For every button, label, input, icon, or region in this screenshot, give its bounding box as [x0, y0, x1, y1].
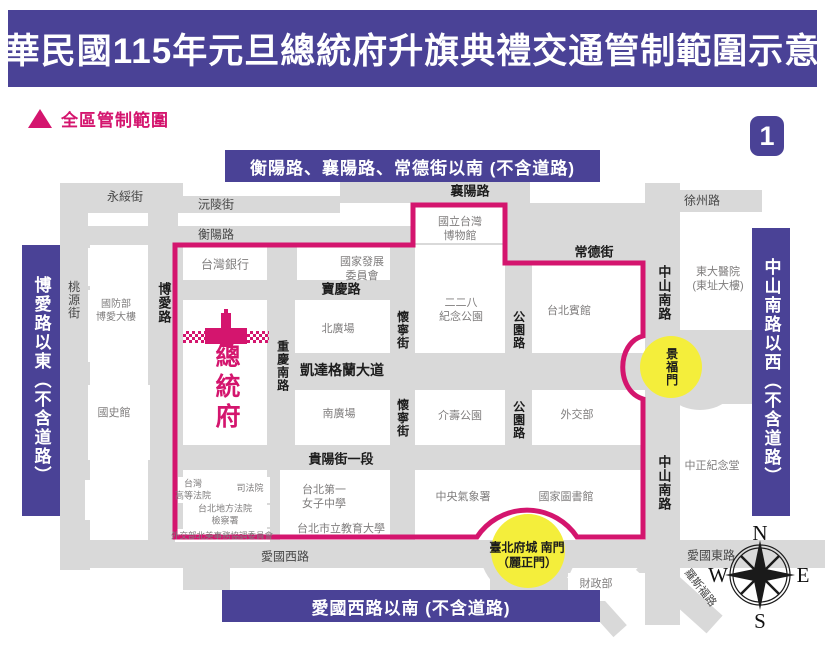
lbl-boai: 博愛路 [155, 282, 172, 324]
lbl-guesthouse: 台北賓館 [547, 304, 591, 318]
lbl-ndc: 國家發展 委員會 [340, 255, 384, 283]
lbl-ketagalan: 凱達格蘭大道 [300, 362, 384, 380]
lbl-south-gate: 臺北府城 南門 （麗正門） [489, 541, 564, 572]
lbl-presidential-office: 總統府 [210, 343, 242, 433]
lbl-huaining-s: 懷寧街 [394, 399, 409, 438]
lbl-weather: 中央氣象署 [436, 490, 491, 504]
lbl-judicial: 司法院 [236, 483, 263, 495]
east-wedge [700, 328, 752, 404]
boundary-banner-west: 博愛路以東（不含道路） [22, 245, 60, 516]
lbl-academia: 國史館 [98, 406, 131, 420]
lbl-museum: 國立台灣 博物館 [438, 215, 482, 243]
lbl-hospital: 東大醫院 (東址大樓) [692, 265, 743, 293]
lbl-chongqing: 重慶南路 [274, 340, 289, 392]
lbl-yuanling: 沅陵街 [198, 197, 234, 212]
lbl-north-plaza: 北廣場 [322, 322, 355, 336]
po-icon-right-wing [247, 331, 269, 343]
lbl-peace-park: 二二八 紀念公園 [439, 296, 483, 324]
lbl-xuzhou: 徐州路 [684, 193, 720, 208]
po-icon-topper [224, 309, 228, 315]
lbl-zhongshan-n: 中山南路 [655, 265, 672, 321]
lbl-baoqing: 寶慶路 [321, 282, 360, 299]
lbl-gongyuan-s: 公園路 [510, 401, 525, 440]
lbl-mnd: 國防部 博愛大樓 [96, 299, 136, 325]
lbl-huaining-n: 懷寧街 [394, 311, 409, 350]
po-icon-left-wing [183, 331, 205, 343]
blk-gap-1 [178, 213, 300, 226]
lbl-south-plaza: 南廣場 [323, 407, 356, 421]
xiangyang-strip [340, 180, 530, 203]
yuanling-strip [148, 196, 340, 213]
lbl-district-court: 台北地方法院 檢察署 [198, 503, 252, 526]
lbl-first-girls: 台北第一 女子中學 [302, 483, 346, 511]
lbl-aiguo-w: 愛國西路 [261, 549, 309, 564]
lbl-hengyang: 衡陽路 [198, 227, 234, 242]
boundary-banner-east: 中山南路以西（不含道路） [752, 228, 790, 516]
academia-block [88, 385, 150, 460]
traffic-control-map: 永綏街沅陵街衡陽路襄陽路常德街徐州路桃源街博愛路重慶南路懷寧街懷寧街公園路公園路… [0, 0, 825, 645]
lbl-zhongshan-s: 中山南路 [655, 455, 672, 511]
lbl-mofa: 外交部 [561, 408, 594, 422]
lbl-jieshou: 介壽公園 [438, 409, 482, 423]
guiyang-strip [175, 445, 645, 470]
cks-block [680, 430, 755, 540]
lbl-yongsui: 永綏街 [107, 189, 143, 204]
lbl-library: 國家圖書館 [539, 490, 594, 504]
lbl-taiwan-bank: 台灣銀行 [201, 257, 249, 272]
lbl-gongyuan-n: 公園路 [510, 311, 525, 350]
po-icon-tower [221, 313, 231, 347]
lbl-uni-edu: 台北市立教育大學 [297, 522, 385, 536]
blk-gap-3 [88, 248, 148, 286]
lbl-taoyuan: 桃源街 [65, 281, 80, 320]
presidential-office-icon [183, 309, 269, 347]
lbl-aiguo-e: 愛國東路 [687, 548, 735, 563]
lbl-changde: 常德街 [574, 245, 613, 262]
lbl-cks: 中正紀念堂 [685, 459, 740, 473]
boai-stub [183, 568, 230, 590]
lbl-finance: 財政部 [580, 577, 613, 591]
lbl-aitc: 外交部北美事務協調委員會 [171, 531, 273, 542]
boundary-banner-south: 愛國西路以南 (不含道路) [222, 590, 600, 622]
boundary-banner-north: 衡陽路、襄陽路、常德街以南 (不含道路) [225, 150, 600, 182]
lbl-high-court: 台灣 高等法院 [175, 478, 211, 501]
lbl-guiyang: 貴陽街一段 [308, 452, 373, 469]
lbl-jingfumen: 景福門 [663, 348, 678, 387]
blk-gap-2 [88, 213, 148, 226]
lbl-xiangyang: 襄陽路 [450, 184, 489, 201]
blk-gap-4 [85, 480, 140, 520]
